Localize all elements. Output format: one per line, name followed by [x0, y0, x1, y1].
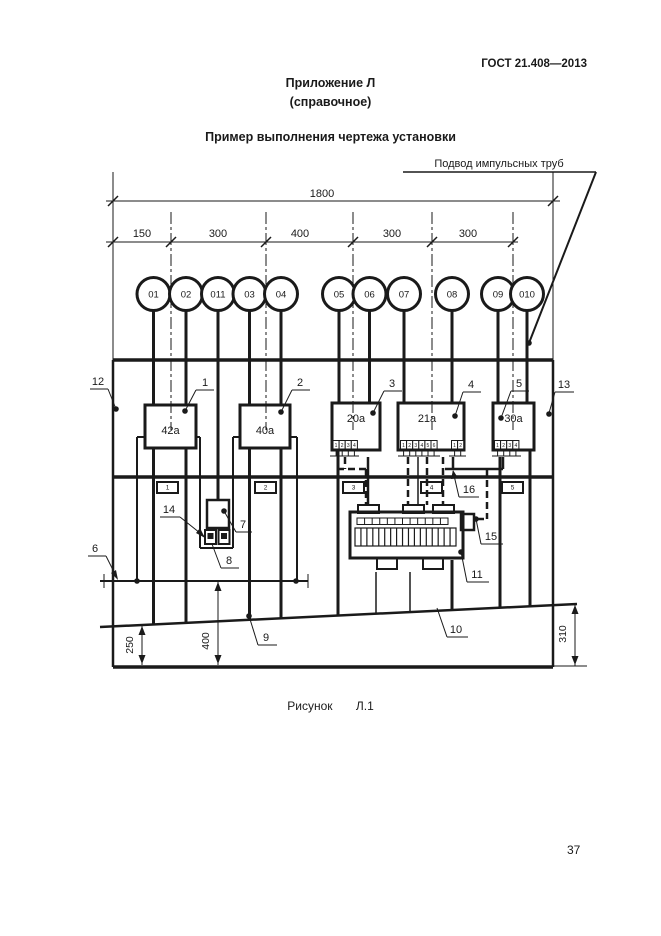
- dim-arrow-up: [215, 582, 222, 591]
- terminal-strip-21a: 1: [402, 443, 405, 449]
- junction-box-3: 3: [352, 485, 356, 492]
- terminal-strip-20a: 1: [335, 443, 338, 449]
- dim-text-400: 400: [200, 632, 212, 650]
- document-page: ГОСТ 21.408—2013 Приложение Л (справочно…: [0, 0, 661, 936]
- instrument-tag-02: 02: [181, 290, 192, 301]
- junction-box-4: 4: [430, 485, 434, 492]
- terminal-strip-20a: 2: [341, 443, 344, 449]
- pos-6: 6: [92, 543, 98, 555]
- dim-text: 400: [291, 228, 309, 240]
- box-label-30a: 30a: [504, 413, 523, 425]
- instrument-tag-09: 09: [493, 290, 504, 301]
- pos-12: 12: [92, 376, 104, 388]
- leader-dot: [221, 508, 227, 514]
- leader: [476, 519, 481, 544]
- instrument-tag-010: 010: [519, 290, 535, 301]
- leader-dot: [526, 340, 532, 346]
- terminal-strip-20a: 3: [347, 443, 350, 449]
- valve-terminal-core: [208, 533, 214, 539]
- leader-dot: [113, 406, 119, 412]
- leader-dot: [370, 410, 376, 416]
- pos-2: 2: [297, 377, 303, 389]
- page-number: 37: [567, 843, 580, 857]
- terminal-strip-21a: 6: [433, 443, 436, 449]
- instrument-tag-01: 01: [148, 290, 159, 301]
- terminal-strip-21a-2: 2: [459, 443, 462, 449]
- manifold-terminal-row: [355, 528, 456, 546]
- pos-11: 11: [471, 569, 482, 581]
- dim-text: 300: [209, 228, 227, 240]
- junction-box-5: 5: [511, 485, 515, 492]
- impulse-leader-diagonal: [529, 172, 596, 343]
- leader-dot: [278, 409, 284, 415]
- pos-16: 16: [463, 484, 475, 496]
- junction-box-2: 2: [264, 485, 268, 492]
- leader-dot: [458, 549, 464, 555]
- terminal-strip-21a: 5: [427, 443, 430, 449]
- pos-5: 5: [516, 378, 522, 390]
- leader-dot: [452, 413, 458, 419]
- dim-arrow-down: [139, 655, 146, 664]
- box-label-21a: 21a: [418, 413, 437, 425]
- terminal-strip-20a: 4: [353, 443, 356, 449]
- terminal-strip-30a: 1: [496, 443, 499, 449]
- pos-9: 9: [263, 632, 269, 644]
- terminal-strip-30a: 3: [508, 443, 511, 449]
- dim-text-250: 250: [124, 636, 136, 654]
- pos-10: 10: [450, 624, 462, 636]
- leader: [437, 608, 447, 637]
- dim-arrow-down: [572, 656, 579, 665]
- instrument-tag-07: 07: [399, 290, 410, 301]
- instrument-tag-06: 06: [364, 290, 375, 301]
- terminal-strip-30a: 4: [514, 443, 517, 449]
- dim-text-1800: 1800: [310, 188, 334, 200]
- figure-caption: Рисунок Л.1: [0, 699, 661, 713]
- box-label-40a: 40a: [256, 425, 275, 437]
- junction-box-1: 1: [166, 485, 170, 492]
- dim-arrow-up: [139, 626, 146, 635]
- dim-text: 150: [133, 228, 151, 240]
- leader-dot: [546, 411, 552, 417]
- instrument-tag-03: 03: [244, 290, 255, 301]
- pos-4: 4: [468, 379, 474, 391]
- manifold-foot-bottom: [377, 558, 397, 569]
- dim-arrow-up: [572, 605, 579, 614]
- connection-dot: [134, 578, 140, 584]
- dim-arrow-down: [215, 655, 222, 664]
- terminal-strip-30a: 2: [502, 443, 505, 449]
- dim-text: 300: [383, 228, 401, 240]
- pos-13: 13: [558, 379, 570, 391]
- leader-arrow: [451, 470, 458, 479]
- instrument-tag-08: 08: [447, 290, 458, 301]
- manifold-foot-bottom: [423, 558, 443, 569]
- leader-dot: [182, 408, 188, 414]
- leader-dot: [246, 613, 252, 619]
- instrument-tag-011: 011: [210, 290, 225, 301]
- pos-3: 3: [389, 378, 395, 390]
- pos-1: 1: [202, 377, 208, 389]
- instrument-tag-04: 04: [276, 290, 287, 301]
- dim-text-310: 310: [557, 625, 569, 643]
- valve-terminal-core: [221, 533, 227, 539]
- terminal-strip-21a-2: 1: [453, 443, 456, 449]
- pos-7: 7: [240, 519, 246, 531]
- pos-15: 15: [485, 531, 497, 543]
- pos-14: 14: [163, 504, 175, 516]
- leader-dot: [473, 516, 479, 522]
- terminal-strip-21a: 2: [408, 443, 411, 449]
- installation-drawing: 1234123456121234123450102011030405060708…: [0, 0, 661, 936]
- box-label-20a: 20a: [347, 413, 366, 425]
- leader-dot: [498, 415, 504, 421]
- dim-text: 300: [459, 228, 477, 240]
- figure-caption-label: Рисунок: [287, 699, 332, 713]
- pos-8: 8: [226, 555, 232, 567]
- instrument-tag-05: 05: [334, 290, 345, 301]
- terminal-strip-21a: 4: [420, 443, 423, 449]
- connection-dot: [293, 578, 299, 584]
- box-label-42a: 42a: [161, 425, 180, 437]
- figure-caption-number: Л.1: [356, 699, 374, 713]
- impulse-tubes-label: Подвод импульсных труб: [434, 158, 563, 170]
- terminal-strip-21a: 3: [414, 443, 417, 449]
